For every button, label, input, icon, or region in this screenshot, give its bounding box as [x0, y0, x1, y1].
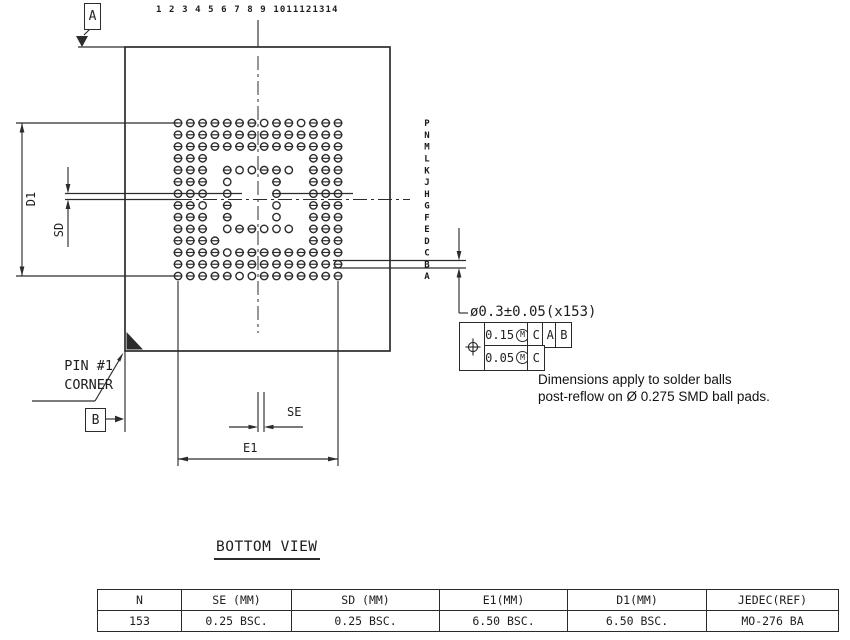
note-line2: post-reflow on Ø 0.275 SMD ball pads.	[538, 388, 770, 405]
value-jedec: MO-276 BA	[707, 611, 839, 632]
se-dimension-label: SE	[287, 405, 301, 419]
reflow-note: Dimensions apply to solder balls post-re…	[538, 371, 770, 405]
sd-arrow-up-icon	[66, 200, 71, 210]
solder-ball-open	[273, 202, 280, 209]
se-arrow-right-icon	[249, 425, 259, 430]
solder-ball-open	[273, 225, 280, 232]
row-letter: D	[424, 237, 430, 247]
pin1-corner-label: PIN #1 CORNER	[28, 357, 113, 395]
d1-dimension-label: D1	[24, 192, 38, 206]
value-d1: 6.50 BSC.	[568, 611, 707, 632]
row-letter: L	[424, 155, 430, 165]
dimension-table: N SE (MM) SD (MM) E1(MM) D1(MM) JEDEC(RE…	[97, 589, 839, 632]
bga-bottom-view-drawing: PNMLKJHGFEDCBA A B 1 2 3 4 5 6 7 8 9 101…	[0, 0, 850, 640]
pin1-label-line2: CORNER	[28, 376, 113, 395]
row-letter: J	[424, 178, 429, 188]
table-header-row: N SE (MM) SD (MM) E1(MM) D1(MM) JEDEC(RE…	[98, 590, 839, 611]
datum-b-label: B	[92, 413, 100, 428]
solder-ball-open	[285, 225, 292, 232]
row-letters: PNMLKJHGFEDCBA	[424, 119, 430, 282]
col-header-n: N	[98, 590, 182, 611]
table-value-row: 153 0.25 BSC. 0.25 BSC. 6.50 BSC. 6.50 B…	[98, 611, 839, 632]
solder-ball-open	[297, 119, 304, 126]
value-se: 0.25 BSC.	[182, 611, 292, 632]
datum-a-flag: A	[84, 3, 101, 30]
row-letter: P	[424, 119, 430, 129]
solder-ball-open	[236, 272, 243, 279]
row-letter: H	[424, 190, 429, 200]
ball-dia-arrow-down-icon	[457, 251, 462, 261]
row-letter: B	[424, 260, 430, 270]
row-letter: K	[424, 166, 430, 176]
pin1-leader-arrow-icon	[117, 353, 123, 362]
tolerance-value-1: 0.15	[485, 328, 514, 342]
pin1-corner-triangle-icon	[127, 332, 144, 350]
solder-ball-open	[248, 272, 255, 279]
col-header-se: SE (MM)	[182, 590, 292, 611]
ball-diameter-callout: ø0.3±0.05(x153)	[470, 304, 596, 320]
solder-ball-open	[260, 225, 267, 232]
solder-ball-open	[260, 119, 267, 126]
solder-ball-open	[236, 166, 243, 173]
row-letter: A	[424, 272, 430, 282]
col-header-jedec: JEDEC(REF)	[707, 590, 839, 611]
sd-arrow-down-icon	[66, 184, 71, 194]
datum-b-arrow-icon	[115, 416, 124, 423]
solder-ball-open	[224, 225, 231, 232]
col-header-d1: D1(MM)	[568, 590, 707, 611]
datum-ref-b-cell: B	[555, 322, 572, 348]
row-letter: F	[424, 213, 429, 223]
tolerance-value-2: 0.05	[485, 351, 514, 365]
datum-b-flag: B	[85, 408, 106, 432]
feature-control-frame: 0.15 M C A B 0.05 M C	[459, 322, 579, 372]
datum-a-label: A	[89, 9, 97, 24]
row-letter: C	[424, 249, 429, 259]
row-letter: E	[424, 225, 429, 235]
tolerance-cell-2: 0.05 M	[484, 345, 531, 371]
solder-ball-open	[224, 178, 231, 185]
pin1-label-line1: PIN #1	[28, 357, 113, 376]
value-sd: 0.25 BSC.	[292, 611, 440, 632]
row-letter: N	[424, 131, 429, 141]
e1-dimension-label: E1	[243, 441, 257, 455]
d1-arrow-up-icon	[20, 123, 25, 133]
e1-arrow-right-icon	[328, 457, 338, 462]
note-line1: Dimensions apply to solder balls	[538, 371, 770, 388]
solder-ball-open	[248, 166, 255, 173]
solder-ball-open	[273, 213, 280, 220]
column-numbers: 1 2 3 4 5 6 7 8 9 1011121314	[156, 5, 339, 15]
e1-arrow-left-icon	[178, 457, 188, 462]
row-letter: G	[424, 202, 429, 212]
datum-ref-c2-cell: C	[527, 345, 545, 371]
value-n: 153	[98, 611, 182, 632]
sd-dimension-label: SD	[52, 223, 66, 237]
value-e1: 6.50 BSC.	[440, 611, 568, 632]
diagram-svg: PNMLKJHGFEDCBA	[0, 0, 850, 640]
row-letter: M	[424, 143, 430, 153]
view-title: BOTTOM VIEW	[214, 539, 320, 560]
solder-ball-open	[224, 249, 231, 256]
se-arrow-left-icon	[264, 425, 274, 430]
ball-dia-arrow-up-icon	[457, 268, 462, 278]
col-header-sd: SD (MM)	[292, 590, 440, 611]
col-header-e1: E1(MM)	[440, 590, 568, 611]
datum-a-triangle-icon	[76, 36, 88, 47]
position-symbol-icon	[463, 336, 483, 358]
d1-arrow-down-icon	[20, 267, 25, 277]
solder-ball-open	[285, 166, 292, 173]
solder-ball-open	[199, 202, 206, 209]
